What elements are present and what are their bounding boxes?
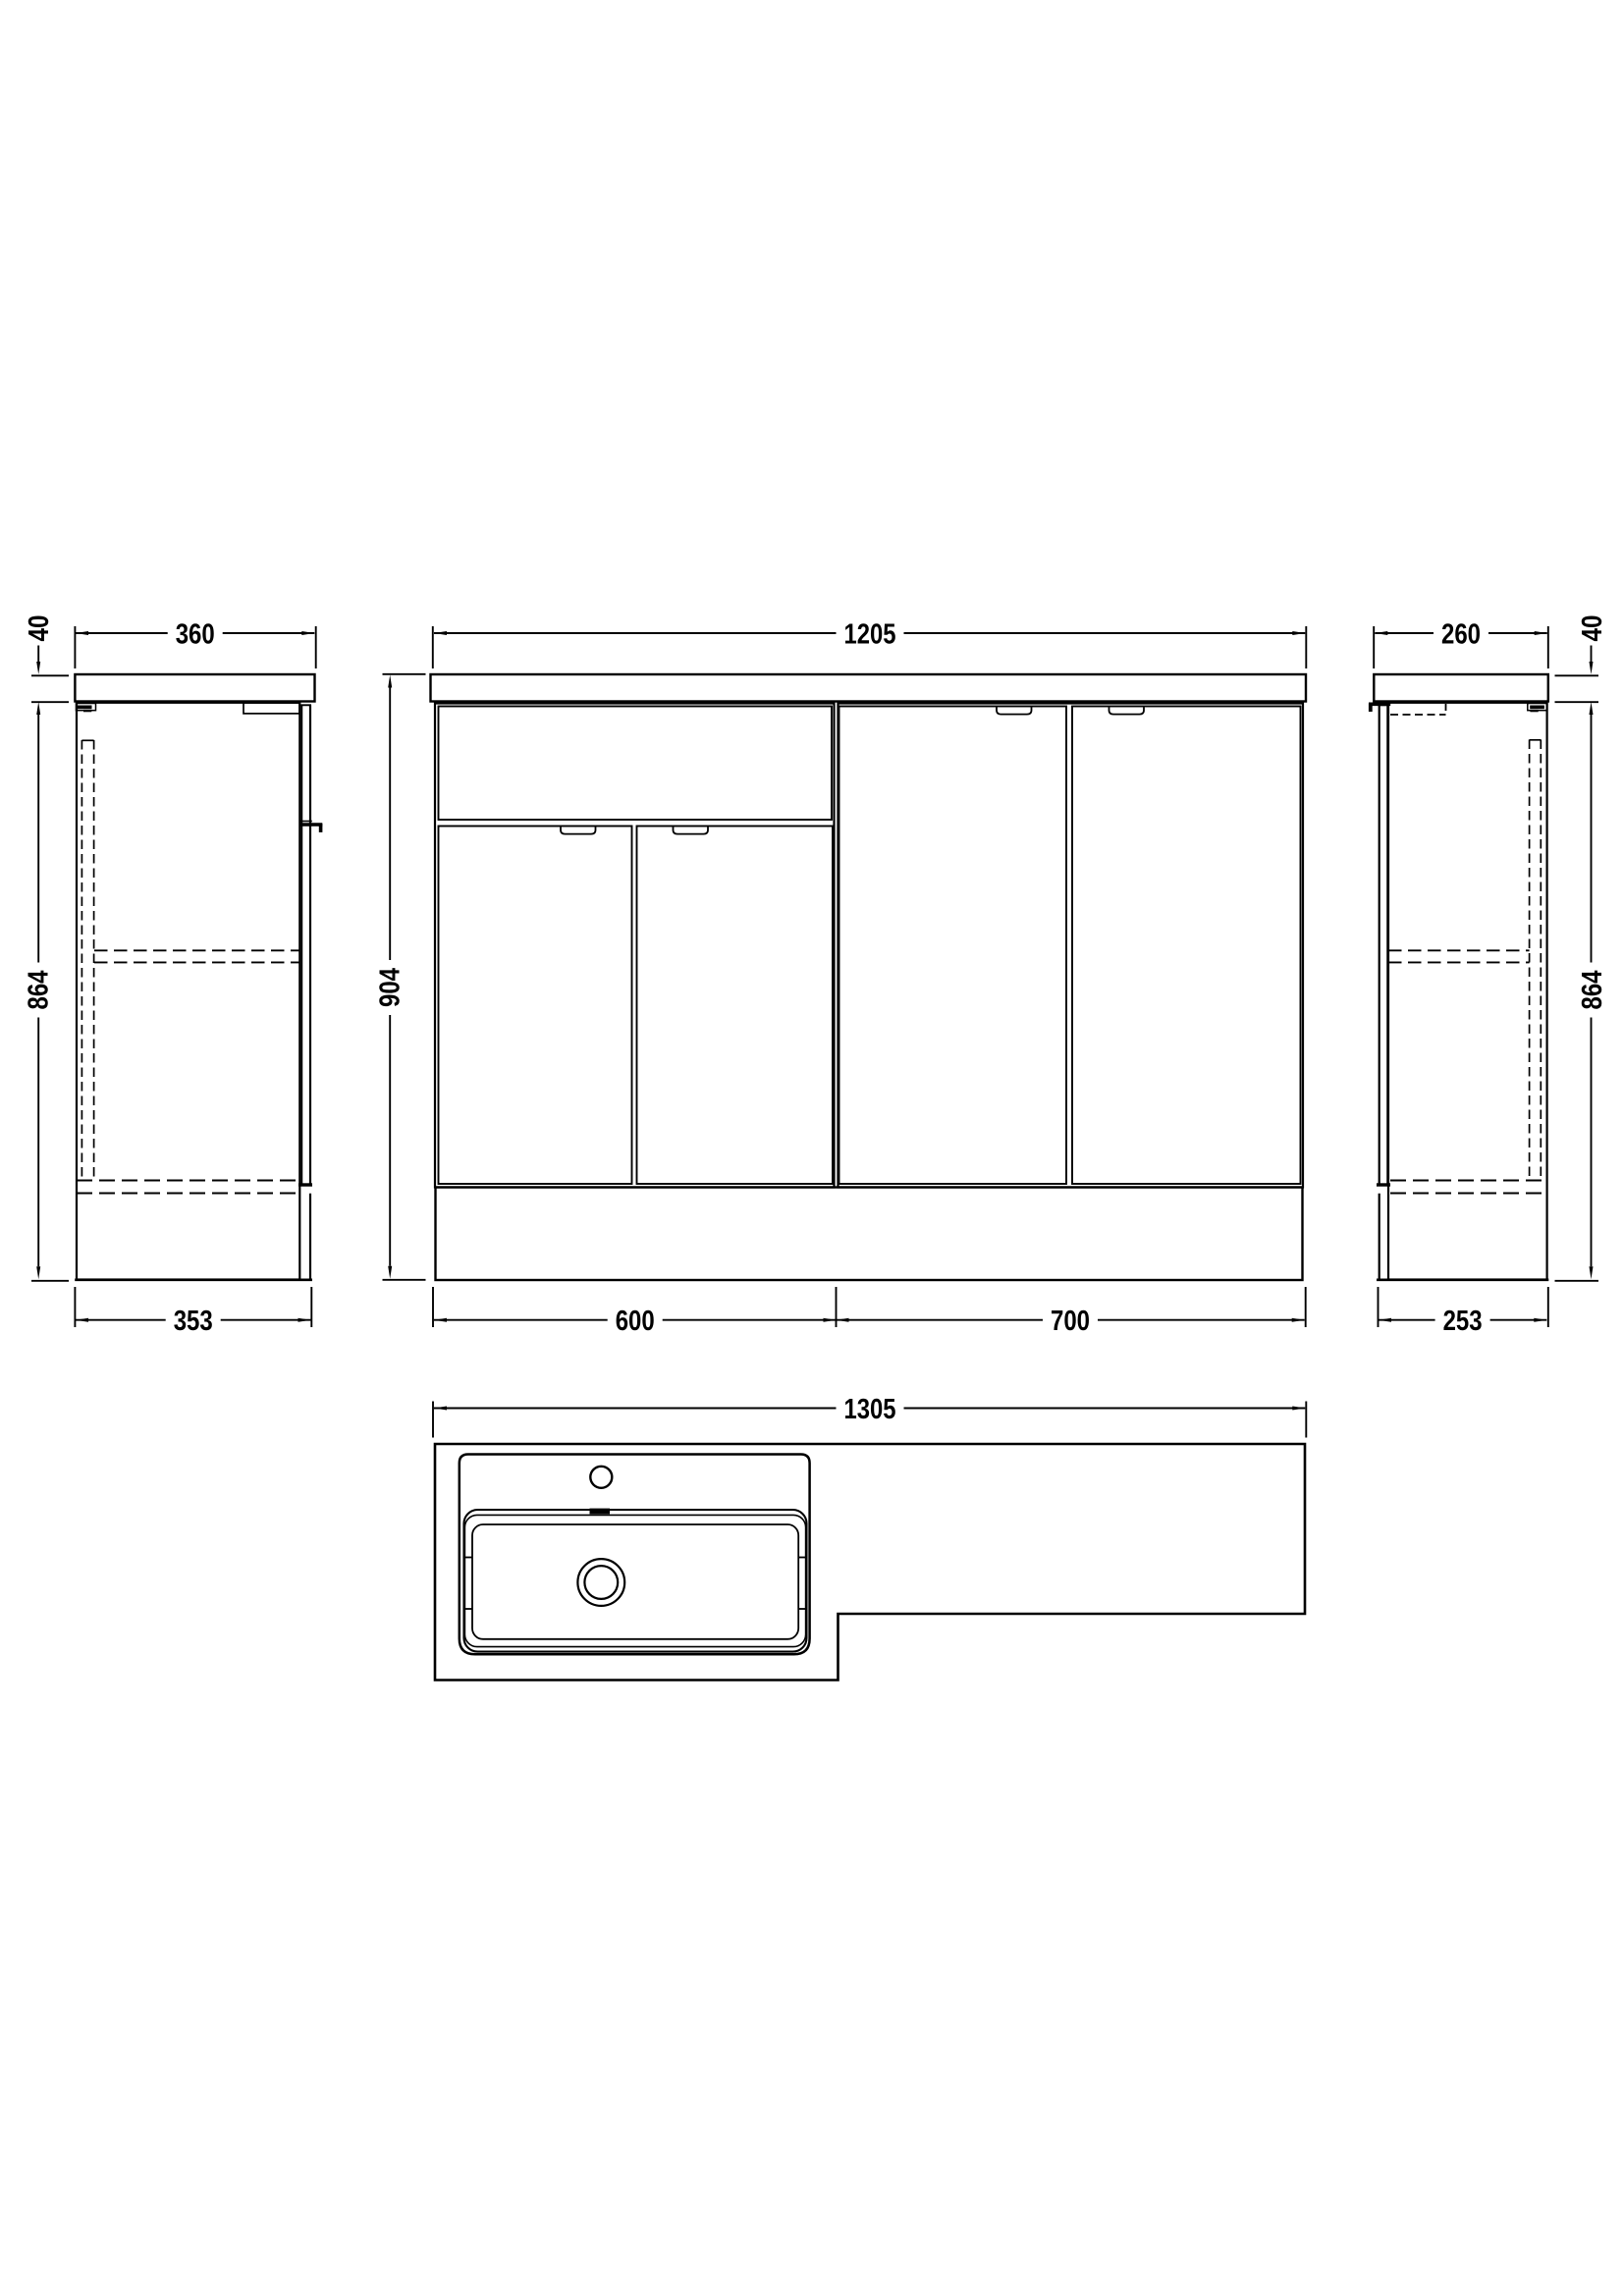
svg-text:1205: 1205 [844, 618, 896, 650]
svg-text:360: 360 [176, 618, 215, 650]
svg-text:1305: 1305 [844, 1394, 896, 1425]
svg-text:253: 253 [1443, 1306, 1483, 1337]
svg-text:40: 40 [24, 615, 55, 642]
svg-text:700: 700 [1051, 1306, 1090, 1337]
svg-text:864: 864 [1577, 971, 1608, 1010]
svg-text:260: 260 [1441, 618, 1481, 650]
svg-text:864: 864 [23, 971, 54, 1010]
svg-text:353: 353 [174, 1306, 213, 1337]
svg-text:904: 904 [375, 968, 406, 1007]
svg-text:600: 600 [616, 1306, 655, 1337]
svg-text:40: 40 [1577, 615, 1608, 642]
